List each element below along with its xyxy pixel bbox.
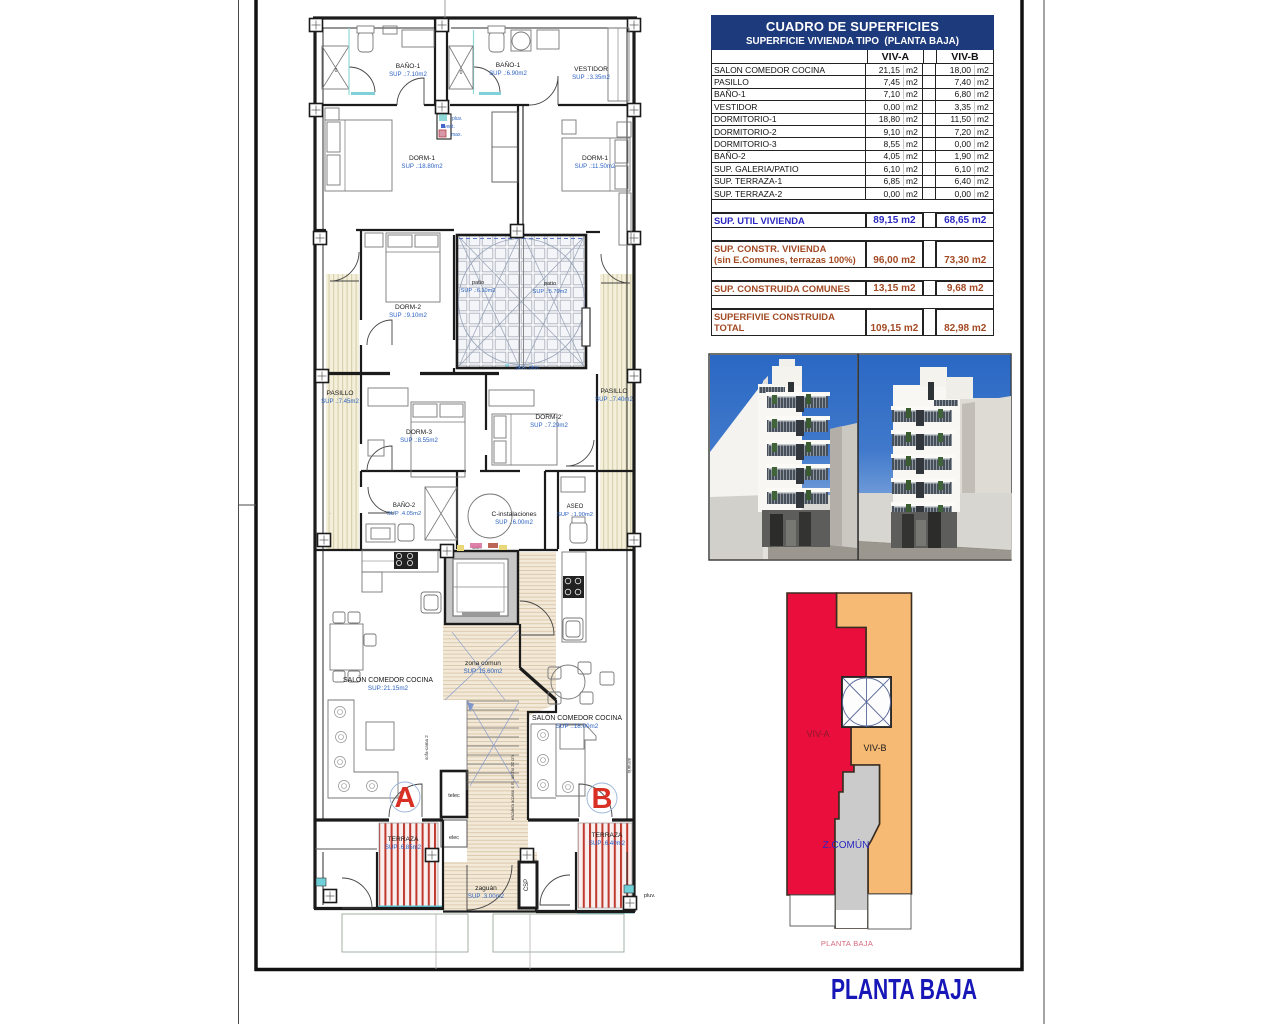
svg-text:SALÓN COMEDOR COCINA: SALÓN COMEDOR COCINA [343, 675, 433, 684]
svg-text:pluv. pluv.: pluv. pluv. [516, 365, 540, 371]
svg-text:SUP .:7.40m2: SUP .:7.40m2 [595, 396, 633, 403]
svg-text:VIV-B: VIV-B [863, 743, 886, 753]
svg-text:✲: ✲ [505, 363, 509, 369]
svg-text:SUP .:18.00m2: SUP .:18.00m2 [556, 723, 599, 730]
svg-text:max.: max. [451, 132, 462, 138]
svg-text:TERRAZA: TERRAZA [388, 836, 419, 843]
svg-text:DORM-1: DORM-1 [582, 155, 608, 162]
svg-text:PASILLO: PASILLO [327, 390, 354, 397]
svg-text:SUP .:1.90m2: SUP .:1.90m2 [557, 512, 593, 518]
svg-text:BAÑO-1: BAÑO-1 [396, 61, 421, 70]
svg-text:zona comun: zona comun [465, 660, 501, 667]
svg-text:BAÑO-2: BAÑO-2 [393, 502, 416, 509]
svg-text:.: . [330, 510, 331, 515]
svg-text:SUP .:8.55m2: SUP .:8.55m2 [400, 437, 438, 444]
svg-text:SUP .:7.29m2: SUP .:7.29m2 [530, 422, 568, 429]
svg-text:VESTIDOR: VESTIDOR [574, 66, 608, 73]
svg-text:elec: elec [449, 835, 459, 841]
svg-text:SUP .:5.70m2: SUP .:5.70m2 [533, 289, 568, 295]
svg-text:ASEO: ASEO [567, 504, 584, 510]
svg-text:SUP .4.05m2: SUP .4.05m2 [387, 511, 421, 517]
svg-text:sofa-cama 2: sofa-cama 2 [424, 735, 429, 760]
svg-text:PLANTA BAJA: PLANTA BAJA [821, 939, 873, 948]
svg-text:SUP .:18.80m2: SUP .:18.80m2 [401, 163, 443, 170]
svg-text:DORM-3: DORM-3 [406, 429, 432, 436]
svg-text:CSP: CSP [524, 879, 530, 891]
svg-text:VIV-A: VIV-A [806, 729, 829, 739]
svg-text:pluv.: pluv. [452, 116, 462, 122]
svg-text:SUP .:7.10m2: SUP .:7.10m2 [389, 71, 427, 78]
svg-text:B: B [592, 783, 613, 815]
svg-text:SUP .6.85m2: SUP .6.85m2 [385, 844, 422, 851]
svg-text:DORM-2': DORM-2' [535, 414, 562, 421]
svg-text:zaguán: zaguán [475, 885, 497, 892]
svg-text:SUP .:3.35m2: SUP .:3.35m2 [572, 74, 610, 81]
svg-text:DORM-1: DORM-1 [409, 155, 435, 162]
svg-text:vent.: vent. [444, 124, 455, 130]
svg-text:SUP .:7.45m2: SUP .:7.45m2 [321, 398, 359, 405]
svg-text:SUP .:9.10m2: SUP .:9.10m2 [389, 312, 427, 319]
svg-text:DORM-2: DORM-2 [395, 304, 421, 311]
svg-text:C-instalaciones: C-instalaciones [491, 511, 537, 518]
svg-text:SALÓN COMEDOR COCINA: SALÓN COMEDOR COCINA [532, 713, 622, 722]
svg-text:SUP .6.40m2: SUP .6.40m2 [589, 840, 626, 847]
svg-text:0: 0 [460, 70, 463, 76]
svg-text:SUP.:15.60m2: SUP.:15.60m2 [464, 668, 503, 675]
svg-text:SUP .:11.50m2: SUP .:11.50m2 [575, 163, 616, 170]
svg-text:patio: patio [544, 281, 556, 287]
svg-text:A: A [395, 782, 416, 814]
svg-text:SUP .:6.00m2: SUP .:6.00m2 [495, 519, 533, 526]
svg-text:SUP .:6.90m2: SUP .:6.90m2 [489, 70, 527, 77]
svg-text:PASILLO: PASILLO [601, 388, 628, 395]
svg-text:SUP.:21.15m2: SUP.:21.15m2 [368, 685, 409, 692]
svg-text:BAÑO-1: BAÑO-1 [496, 60, 521, 69]
svg-text:SUP .3.00m2: SUP .3.00m2 [468, 893, 505, 900]
svg-text:TERRAZA: TERRAZA [592, 832, 623, 839]
svg-text:Z.COMÚN: Z.COMÚN [823, 838, 870, 851]
svg-text:telec: telec [448, 793, 460, 799]
svg-text:escalera acceso 4 m. ancho 32: escalera acceso 4 m. ancho 32 cm [510, 755, 515, 820]
svg-text:SUP .:6.10m2: SUP .:6.10m2 [461, 288, 496, 294]
svg-text:patio: patio [472, 280, 484, 286]
svg-text:PLANTA BAJA: PLANTA BAJA [831, 974, 977, 1006]
svg-text:armario: armario [627, 758, 632, 774]
svg-text:0: 0 [335, 68, 338, 74]
svg-text:pluv.: pluv. [644, 893, 656, 899]
